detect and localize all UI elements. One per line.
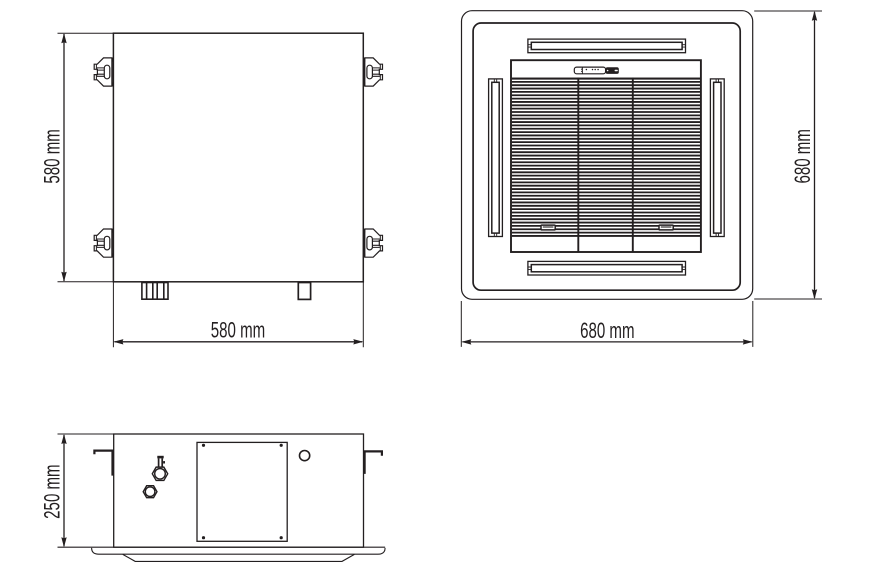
svg-text:580 mm: 580 mm	[41, 129, 66, 183]
svg-text:680 mm: 680 mm	[791, 129, 816, 183]
svg-text:250 mm: 250 mm	[41, 464, 66, 518]
svg-text:680 mm: 680 mm	[580, 319, 634, 344]
svg-text:580 mm: 580 mm	[211, 319, 265, 344]
